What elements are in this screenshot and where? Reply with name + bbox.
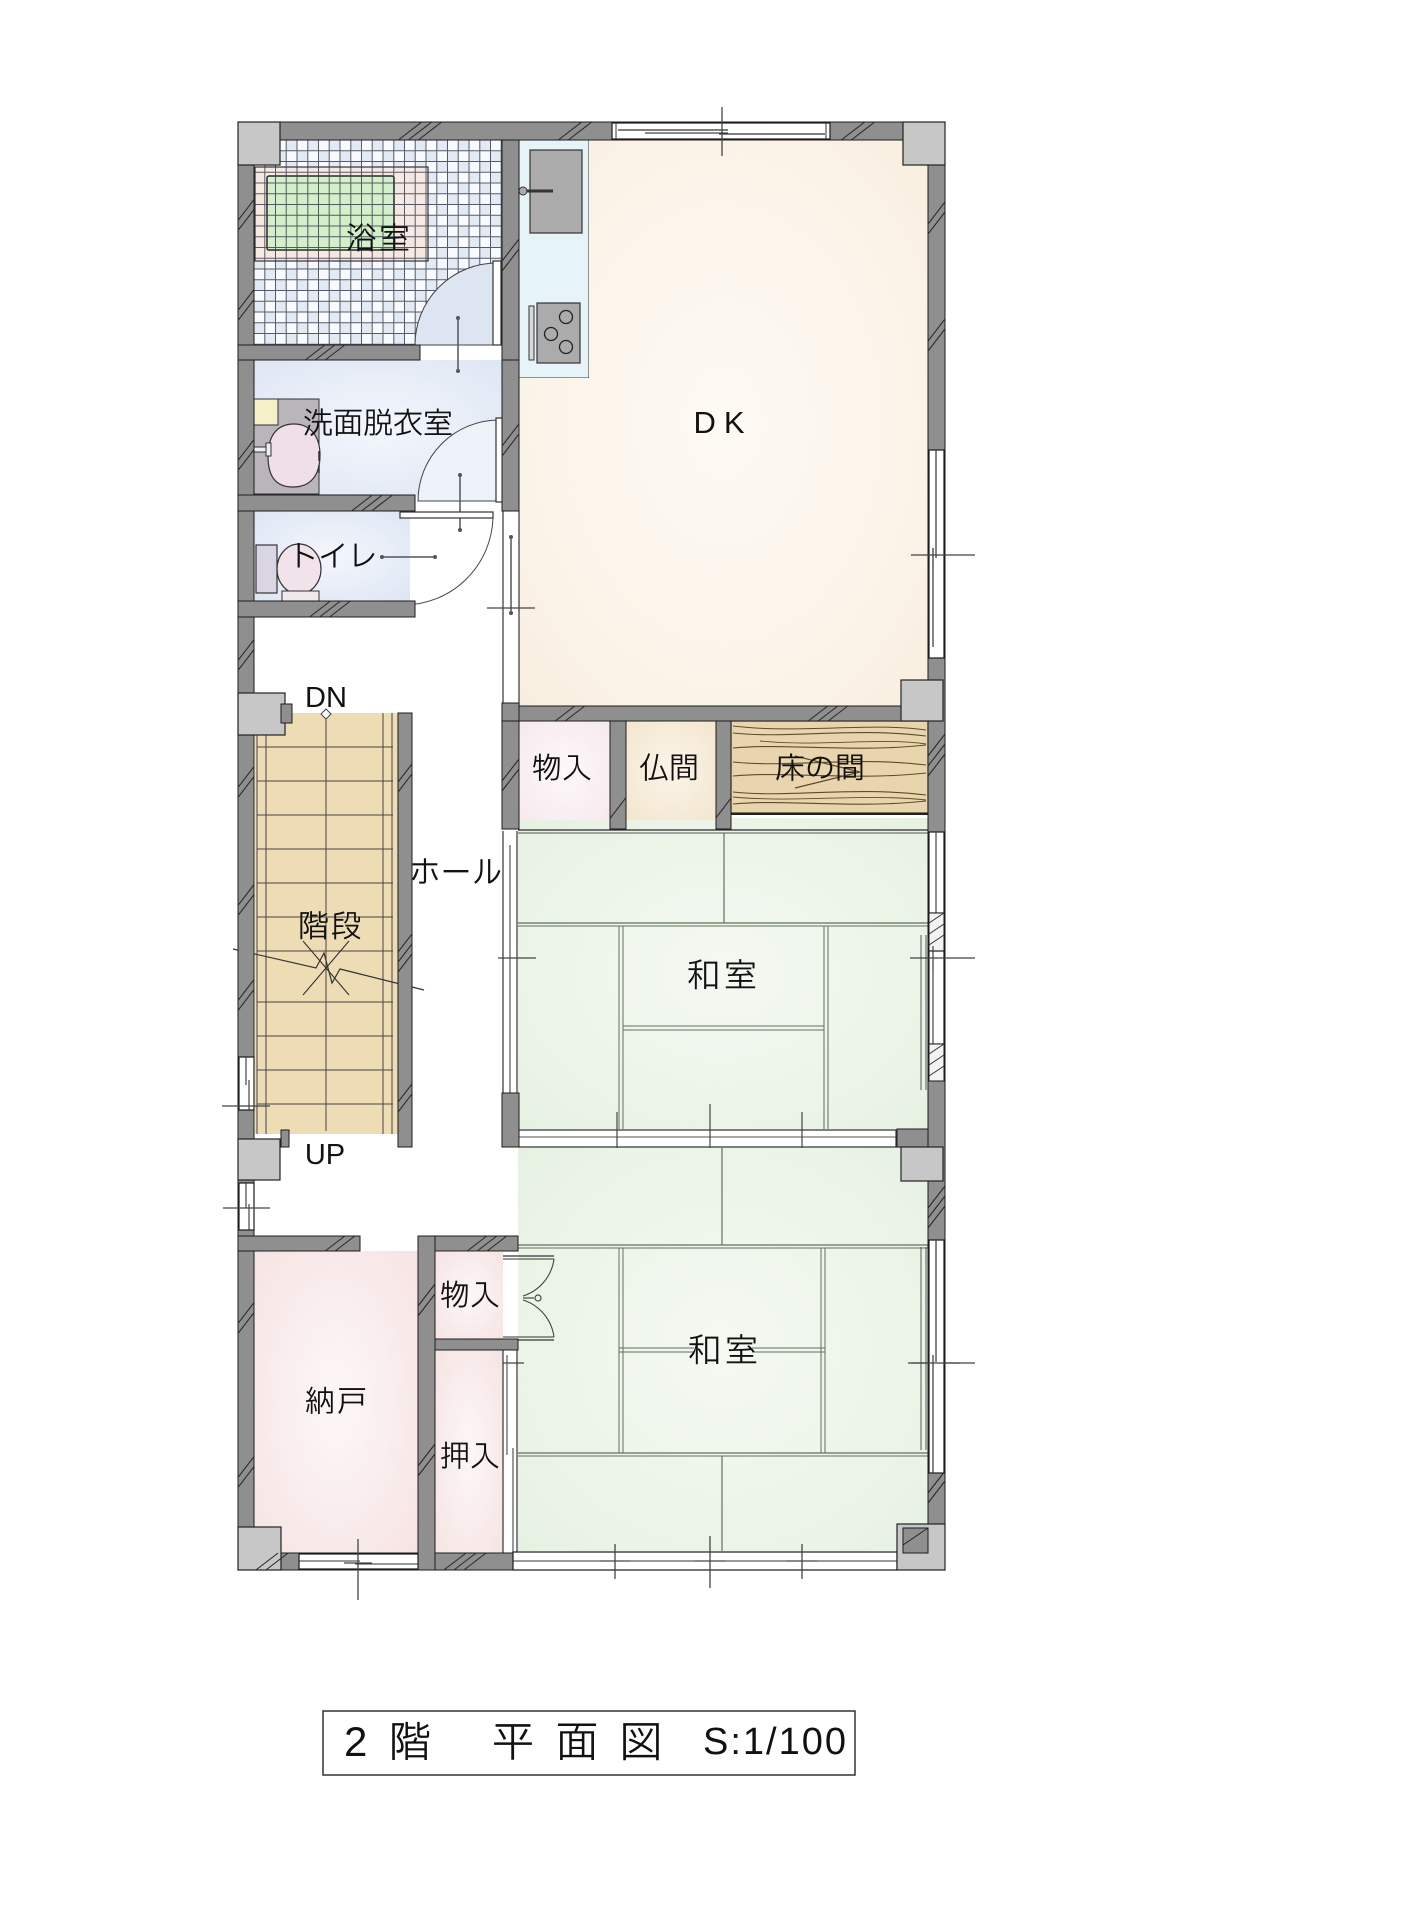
svg-text:DK: DK xyxy=(693,405,752,440)
svg-text:2: 2 xyxy=(344,1718,367,1765)
svg-text:DN: DN xyxy=(305,682,347,714)
svg-text:S:1/100: S:1/100 xyxy=(703,1721,848,1763)
svg-text:UP: UP xyxy=(305,1139,345,1171)
